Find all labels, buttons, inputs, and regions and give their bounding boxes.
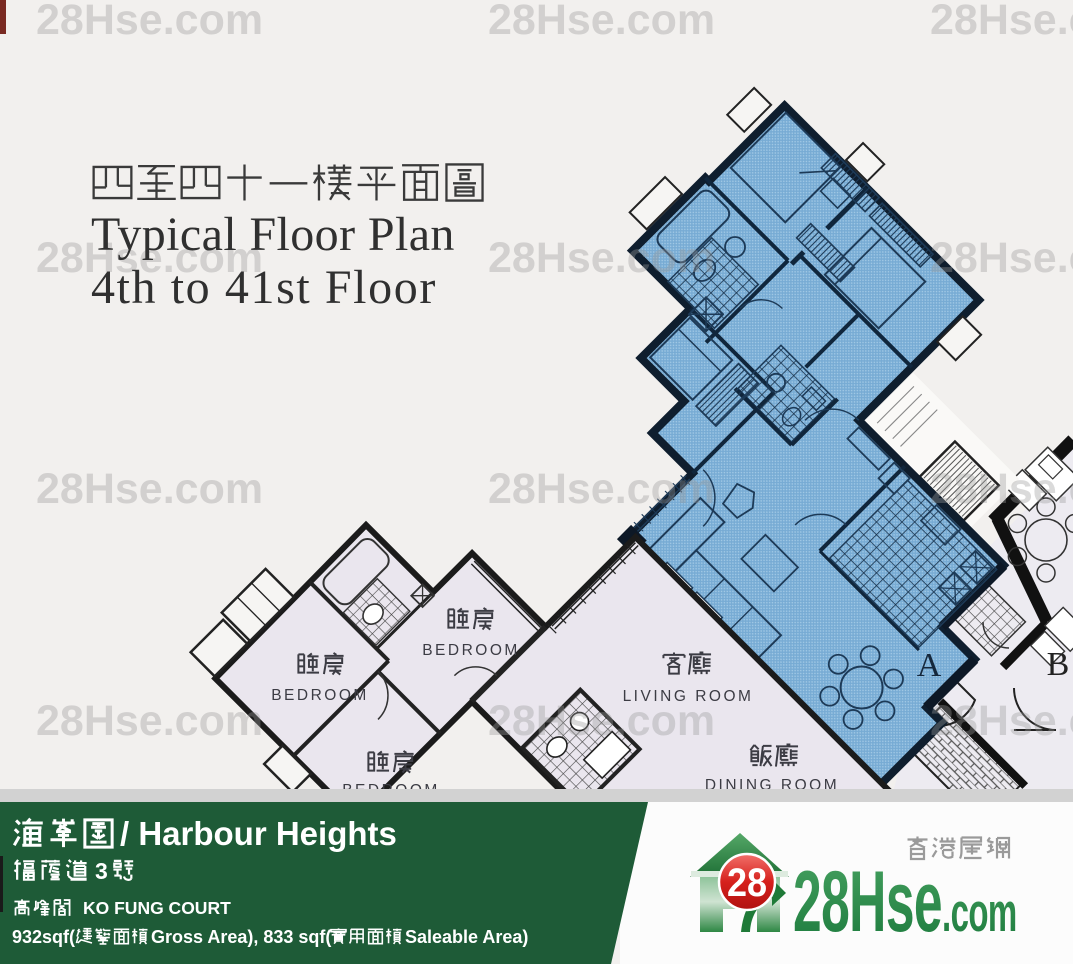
- svg-text:28Hse.com: 28Hse.com: [36, 465, 263, 513]
- svg-text:BEDROOM: BEDROOM: [271, 687, 369, 704]
- svg-text:28Hse.com: 28Hse.com: [930, 0, 1073, 44]
- svg-text:28Hse.com: 28Hse.com: [930, 465, 1073, 513]
- svg-text:KO FUNG COURT: KO FUNG COURT: [83, 898, 231, 918]
- svg-text:3: 3: [95, 858, 108, 884]
- svg-text:28Hse.com: 28Hse.com: [36, 0, 263, 44]
- svg-text:28Hse.com: 28Hse.com: [930, 234, 1073, 282]
- svg-text:28Hse.com: 28Hse.com: [488, 0, 715, 44]
- svg-text:28Hse.com: 28Hse.com: [488, 697, 715, 745]
- svg-text:28Hse.com: 28Hse.com: [36, 697, 263, 745]
- svg-text:932sqf(: 932sqf(: [12, 927, 75, 947]
- svg-text:28Hse.com: 28Hse.com: [488, 465, 715, 513]
- svg-text:A: A: [917, 647, 942, 684]
- svg-text:28Hse.com: 28Hse.com: [488, 234, 715, 282]
- svg-text:4th to 41st Floor: 4th to 41st Floor: [91, 261, 437, 314]
- svg-text:28Hse.com: 28Hse.com: [930, 697, 1073, 745]
- svg-text:Saleable Area): Saleable Area): [405, 927, 528, 947]
- svg-text:Typical Floor Plan: Typical Floor Plan: [91, 208, 455, 261]
- svg-text:/ Harbour Heights: / Harbour Heights: [120, 815, 397, 852]
- svg-text:B: B: [1047, 646, 1070, 683]
- svg-text:28: 28: [727, 861, 767, 905]
- svg-text:BEDROOM: BEDROOM: [422, 642, 520, 659]
- svg-text:Gross Area), 833 sqf(: Gross Area), 833 sqf(: [151, 927, 331, 947]
